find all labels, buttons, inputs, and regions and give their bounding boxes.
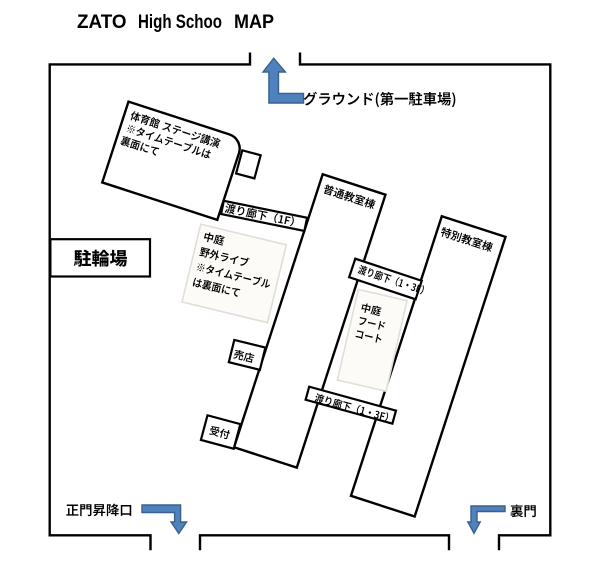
svg-text:High Schoo: High Schoo: [138, 12, 222, 33]
svg-text:ZATO: ZATO: [77, 12, 127, 33]
svg-text:MAP: MAP: [234, 12, 274, 33]
